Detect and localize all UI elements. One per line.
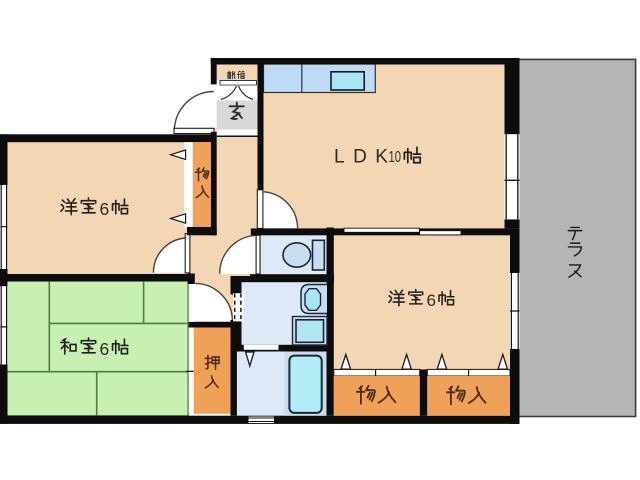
svg-text:10: 10	[389, 149, 402, 166]
svg-text:6: 6	[100, 339, 110, 359]
svg-text:6: 6	[100, 199, 110, 219]
svg-text:LDK: LDK	[334, 146, 396, 167]
svg-text:6: 6	[427, 291, 436, 310]
